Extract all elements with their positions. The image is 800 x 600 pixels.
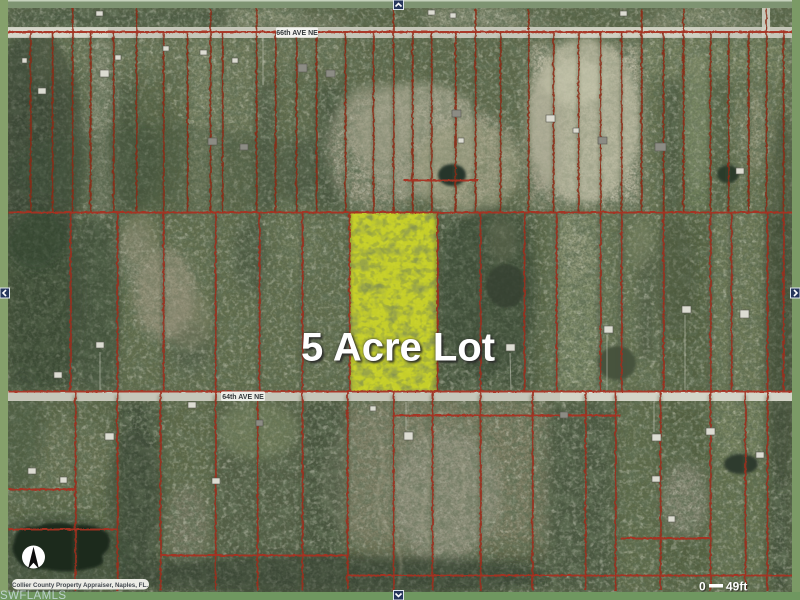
svg-text:Collier County Property Apprai: Collier County Property Appraiser, Naple… xyxy=(12,582,148,589)
svg-text:64th AVE NE: 64th AVE NE xyxy=(222,394,264,401)
svg-text:SWFLAMLS: SWFLAMLS xyxy=(0,590,66,600)
svg-text:66th AVE NE: 66th AVE NE xyxy=(276,30,318,37)
svg-text:49ft: 49ft xyxy=(726,580,747,594)
svg-text:5 Acre Lot: 5 Acre Lot xyxy=(301,326,495,370)
svg-text:0: 0 xyxy=(699,580,706,594)
